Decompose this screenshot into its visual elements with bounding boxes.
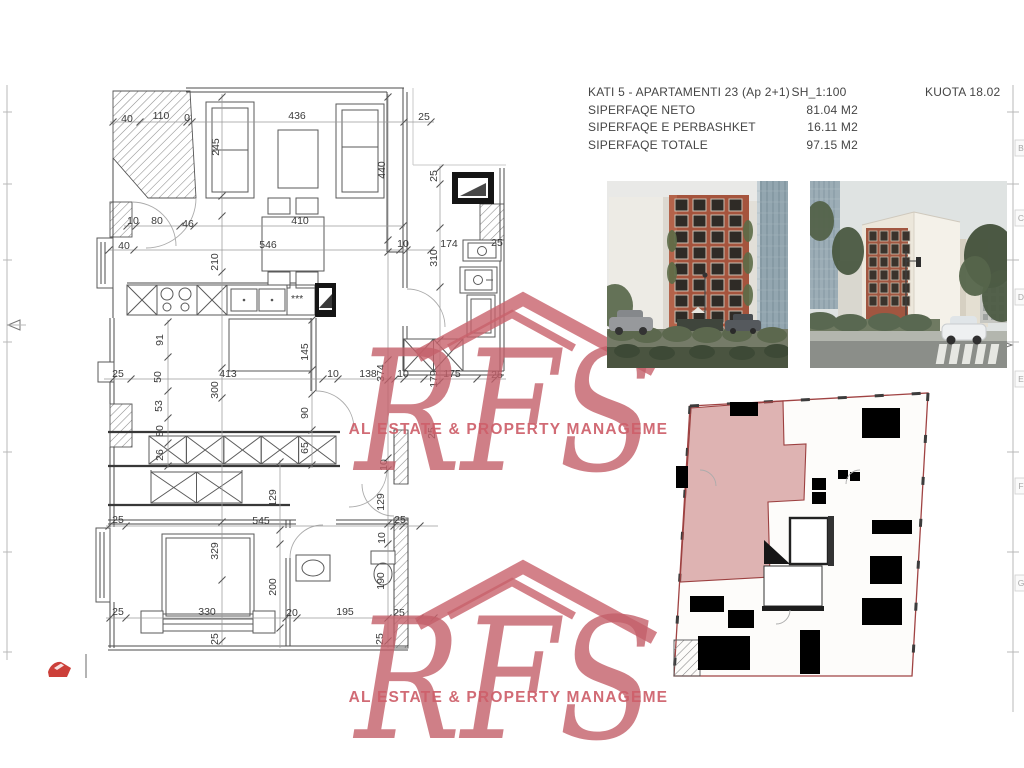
drawing-sheet: *** 401100436252454401080464104054610174… [0, 0, 1024, 768]
area-value: 81.04 M2 [788, 102, 858, 120]
dimension-label: 25 [393, 607, 405, 619]
dimension-label: 110 [153, 110, 170, 122]
dimension-label: 129 [267, 489, 279, 507]
dimension-label: 329 [209, 542, 221, 560]
dimension-label: 374 [375, 364, 387, 382]
dimension-label: 179 [428, 370, 440, 388]
building-render-side [810, 181, 1007, 368]
building-render-front-image [607, 181, 788, 368]
dimension-label: 53 [153, 400, 165, 412]
area-row: SIPERFAQE E PERBASHKET16.11 M2 [588, 119, 1008, 137]
dimension-label: 40 [118, 240, 130, 252]
dimension-label: 0 [184, 112, 190, 124]
dimension-label: 10 [127, 215, 139, 227]
dimension-label: 25 [426, 427, 438, 439]
dimension-label: 80 [154, 425, 166, 437]
dimension-label: 25 [112, 606, 124, 618]
dimension-label: 50 [152, 371, 164, 383]
dimension-label: 175 [443, 368, 461, 380]
area-label: SIPERFAQE E PERBASHKET [588, 119, 788, 137]
area-label: SIPERFAQE TOTALE [588, 137, 788, 155]
dimension-label: 40 [121, 113, 133, 125]
grid-letter: D [1018, 292, 1024, 302]
dimension-label: 20 [286, 607, 298, 619]
dimension-label: 65 [299, 442, 311, 454]
dimension-label: 546 [259, 239, 277, 251]
drawing-scale: SH_1:100 [792, 85, 847, 99]
dimension-label: 25 [394, 514, 406, 526]
dimension-label: 310 [428, 249, 440, 267]
dimension-label: 10 [376, 532, 388, 544]
area-row: SIPERFAQE TOTALE97.15 M2 [588, 137, 1008, 155]
dimension-label: 10 [397, 238, 409, 250]
grid-letter: G [1018, 578, 1024, 588]
dimension-label: 25 [374, 633, 386, 645]
area-table: SIPERFAQE NETO81.04 M2SIPERFAQE E PERBAS… [588, 102, 1008, 155]
grid-letter: C [1018, 213, 1024, 223]
area-value: 16.11 M2 [788, 119, 858, 137]
dimension-label: 545 [252, 515, 270, 527]
dimension-label: 195 [336, 606, 354, 618]
dimension-label: 129 [375, 493, 387, 511]
dimension-label: 436 [288, 110, 306, 122]
dimension-label: 10 [327, 368, 339, 380]
dimension-label: 25 [491, 369, 503, 381]
footer-logo-mark [48, 654, 86, 678]
dimension-label: 200 [267, 578, 279, 596]
dimension-label: 413 [219, 368, 237, 380]
apartment-title: KATI 5 - APARTAMENTI 23 (Ap 2+1) [588, 84, 788, 102]
dimension-label: 10 [378, 459, 390, 471]
grid-letter: E [1018, 374, 1024, 384]
dimension-label: 210 [209, 253, 221, 271]
dimension-label: 90 [299, 407, 311, 419]
dimension-label: 10 [397, 368, 409, 380]
grid-letter: F [1018, 481, 1023, 491]
key-plan-drawing [674, 393, 928, 676]
dimension-label: 25 [209, 633, 221, 645]
title-row: KATI 5 - APARTAMENTI 23 (Ap 2+1) SH_1:10… [588, 84, 1008, 102]
dimension-label: 91 [154, 334, 166, 346]
dimension-label: 300 [209, 381, 221, 399]
key-plan [660, 388, 954, 678]
stove-stars-label: *** [291, 293, 303, 305]
dimension-label: 174 [440, 238, 458, 250]
building-render-front [607, 181, 788, 368]
dimension-label: 80 [151, 215, 163, 227]
dimension-label: 190 [375, 572, 387, 590]
dimension-label: 410 [291, 215, 309, 227]
dimension-label: 46 [182, 218, 194, 230]
kuota-label: KUOTA 18.02 [925, 84, 1000, 102]
grid-letter: B [1018, 143, 1024, 153]
grid-reference-letters: BCDEFG [1015, 140, 1024, 591]
area-value: 97.15 M2 [788, 137, 858, 155]
dimension-label: 26 [154, 449, 166, 461]
dimension-label: 245 [210, 138, 222, 156]
dimension-label: 25 [428, 170, 440, 182]
dimension-label: 25 [112, 514, 124, 526]
dimension-label: 440 [376, 161, 388, 179]
dimension-label: 145 [299, 343, 311, 361]
dimension-label: 330 [198, 606, 216, 618]
dimension-label: 25 [418, 111, 430, 123]
dimension-label: 25 [491, 237, 503, 249]
area-row: SIPERFAQE NETO81.04 M2 [588, 102, 1008, 120]
title-block: KATI 5 - APARTAMENTI 23 (Ap 2+1) SH_1:10… [588, 84, 1008, 154]
area-label: SIPERFAQE NETO [588, 102, 788, 120]
building-render-side-image [810, 181, 1007, 368]
dimension-label: 25 [112, 368, 124, 380]
